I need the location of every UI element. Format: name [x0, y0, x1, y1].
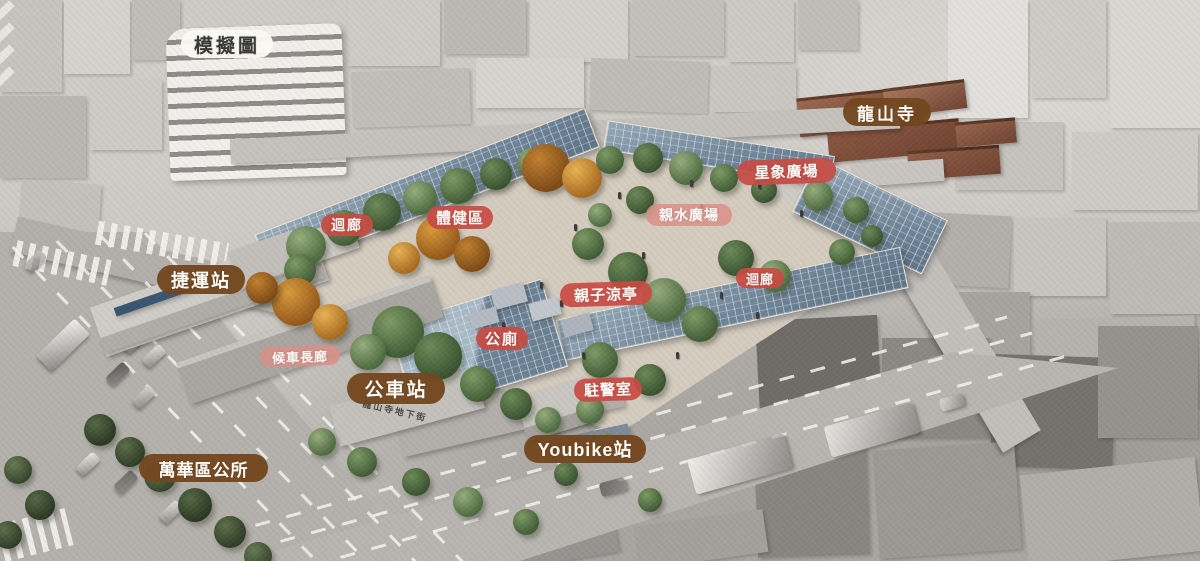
park-path: [6, 135, 304, 269]
building: [1110, 222, 1200, 314]
building: [755, 315, 883, 433]
crosswalk: [95, 221, 229, 268]
park-path: [0, 103, 163, 197]
tree: [0, 521, 22, 549]
tree: [554, 462, 578, 486]
label-family-pavilion: 親子涼亭: [560, 280, 653, 307]
tree: [178, 488, 212, 522]
tree: [347, 447, 377, 477]
vehicle: [939, 393, 966, 412]
tree: [25, 490, 55, 520]
building: [948, 0, 1028, 118]
building: [1110, 0, 1200, 128]
tree: [272, 278, 320, 326]
tree: [829, 239, 855, 265]
building: [0, 286, 66, 404]
vehicle: [687, 433, 793, 494]
pedestrian: [642, 252, 645, 259]
road-paint-text: [0, 22, 15, 43]
label-water-plaza: 親水廣場: [646, 204, 732, 226]
road-paint-text: [0, 0, 15, 21]
building: [507, 527, 620, 561]
building: [94, 484, 190, 561]
tree: [402, 468, 430, 496]
vehicle: [141, 343, 167, 368]
label-longshan-temple: 龍山寺: [843, 98, 931, 126]
stall-canopy: [528, 296, 562, 321]
tree: [582, 342, 618, 378]
tree: [214, 516, 246, 548]
building: [0, 408, 92, 561]
building: [351, 68, 471, 128]
building: [0, 0, 62, 92]
aerial-simulation-image: 龍山寺地下街 模擬圖 龍山寺 星象廣場 迴廊 體健區 親水廣場 捷運站 親子涼亭…: [0, 0, 1200, 561]
vehicle: [131, 384, 157, 409]
building: [882, 338, 990, 438]
tree: [535, 407, 561, 433]
tree: [308, 428, 336, 456]
label-police-post: 駐警室: [574, 377, 643, 402]
tree: [4, 456, 32, 484]
pedestrian: [618, 192, 621, 199]
tree: [633, 143, 663, 173]
corridor-canopy: [254, 108, 600, 274]
stall-canopy: [468, 307, 499, 330]
pedestrian: [690, 180, 693, 187]
label-bus-waiting-corridor: 候車長廊: [260, 345, 341, 368]
tree: [513, 509, 539, 535]
building: [712, 66, 796, 112]
tree: [669, 151, 703, 185]
vehicle: [24, 249, 47, 272]
simulation-title-badge: 模擬圖: [181, 30, 273, 58]
park-path: [1, 179, 339, 275]
building: [1014, 218, 1106, 296]
tree: [596, 146, 624, 174]
building: [0, 96, 86, 178]
building: [90, 80, 162, 150]
tree: [350, 334, 386, 370]
pedestrian: [540, 282, 543, 289]
vehicle: [36, 318, 90, 371]
tree: [454, 236, 490, 272]
vehicle: [599, 477, 628, 497]
tree: [284, 254, 316, 286]
tree: [517, 148, 547, 178]
tree: [803, 181, 833, 211]
lane-marking: [255, 316, 1007, 527]
road-paint-text: [0, 66, 15, 87]
lane-marking: [280, 332, 1032, 543]
building: [1098, 326, 1198, 438]
label-bus-station: 公車站: [347, 373, 445, 404]
building: [1032, 0, 1106, 98]
building: [754, 436, 870, 558]
tree: [562, 158, 602, 198]
label-mrt-station: 捷運站: [157, 265, 245, 294]
building: [1072, 132, 1198, 210]
stall-canopy: [490, 282, 528, 310]
tree: [480, 158, 512, 190]
temple-courtyard: [851, 159, 944, 187]
building: [348, 0, 440, 66]
street-north: [230, 104, 900, 163]
tree: [460, 366, 496, 402]
stall-canopy: [560, 312, 594, 337]
tree: [861, 225, 883, 247]
vehicle: [75, 451, 101, 476]
building: [798, 0, 858, 50]
building: [1020, 457, 1200, 561]
building: [476, 58, 584, 108]
tree: [312, 304, 348, 340]
crosswalk: [0, 508, 74, 561]
vehicle: [121, 329, 147, 354]
pedestrian: [676, 352, 679, 359]
building: [589, 58, 709, 114]
vehicle: [823, 402, 920, 457]
tree: [244, 542, 272, 561]
pedestrian: [720, 292, 723, 299]
tree: [682, 306, 718, 342]
tree: [440, 168, 476, 204]
building: [928, 292, 1030, 374]
building: [1034, 315, 1197, 413]
building: [64, 0, 130, 74]
lane-marking: [340, 353, 1073, 559]
building: [0, 228, 56, 282]
tree: [286, 226, 326, 266]
mrt-station-roof: [90, 231, 329, 357]
crosswalk: [12, 240, 111, 285]
temple-roof: [955, 117, 1017, 147]
temple-roof: [907, 145, 1001, 180]
building: [872, 441, 1021, 559]
street-east: [869, 207, 1041, 453]
building: [444, 0, 526, 54]
label-youbike-station: Youbike站: [524, 435, 646, 463]
vehicle: [113, 469, 139, 494]
label-corridor-nw: 迴廊: [321, 214, 373, 236]
pedestrian: [756, 312, 759, 319]
label-public-restroom: 公廁: [476, 327, 528, 350]
building: [955, 122, 1063, 190]
tree: [372, 306, 424, 358]
tree: [843, 197, 869, 223]
tree: [84, 414, 116, 446]
vehicle: [158, 499, 184, 524]
vehicle: [105, 361, 131, 386]
pedestrian: [574, 224, 577, 231]
building: [132, 0, 180, 60]
road-paint-text: [0, 44, 15, 65]
pedestrian: [800, 210, 803, 217]
building: [18, 179, 101, 232]
building: [728, 0, 794, 62]
tree: [572, 228, 604, 260]
building: [990, 354, 1116, 470]
tree: [246, 272, 278, 304]
tree: [388, 242, 420, 274]
tree: [710, 164, 738, 192]
tree: [522, 144, 570, 192]
label-fitness-zone: 體健區: [427, 206, 493, 229]
tree: [453, 487, 483, 517]
label-wanhua-district-office: 萬華區公所: [139, 454, 268, 482]
label-star-plaza: 星象廣場: [737, 157, 837, 185]
park-path: [3, 197, 296, 306]
building: [916, 212, 1012, 289]
building: [634, 509, 769, 561]
park-path: [0, 0, 248, 130]
tree: [588, 203, 612, 227]
building: [632, 0, 724, 56]
label-corridor-se: 迴廊: [736, 268, 784, 288]
pedestrian: [582, 352, 585, 359]
building: [530, 0, 628, 62]
tree: [638, 488, 662, 512]
tree: [500, 388, 532, 420]
